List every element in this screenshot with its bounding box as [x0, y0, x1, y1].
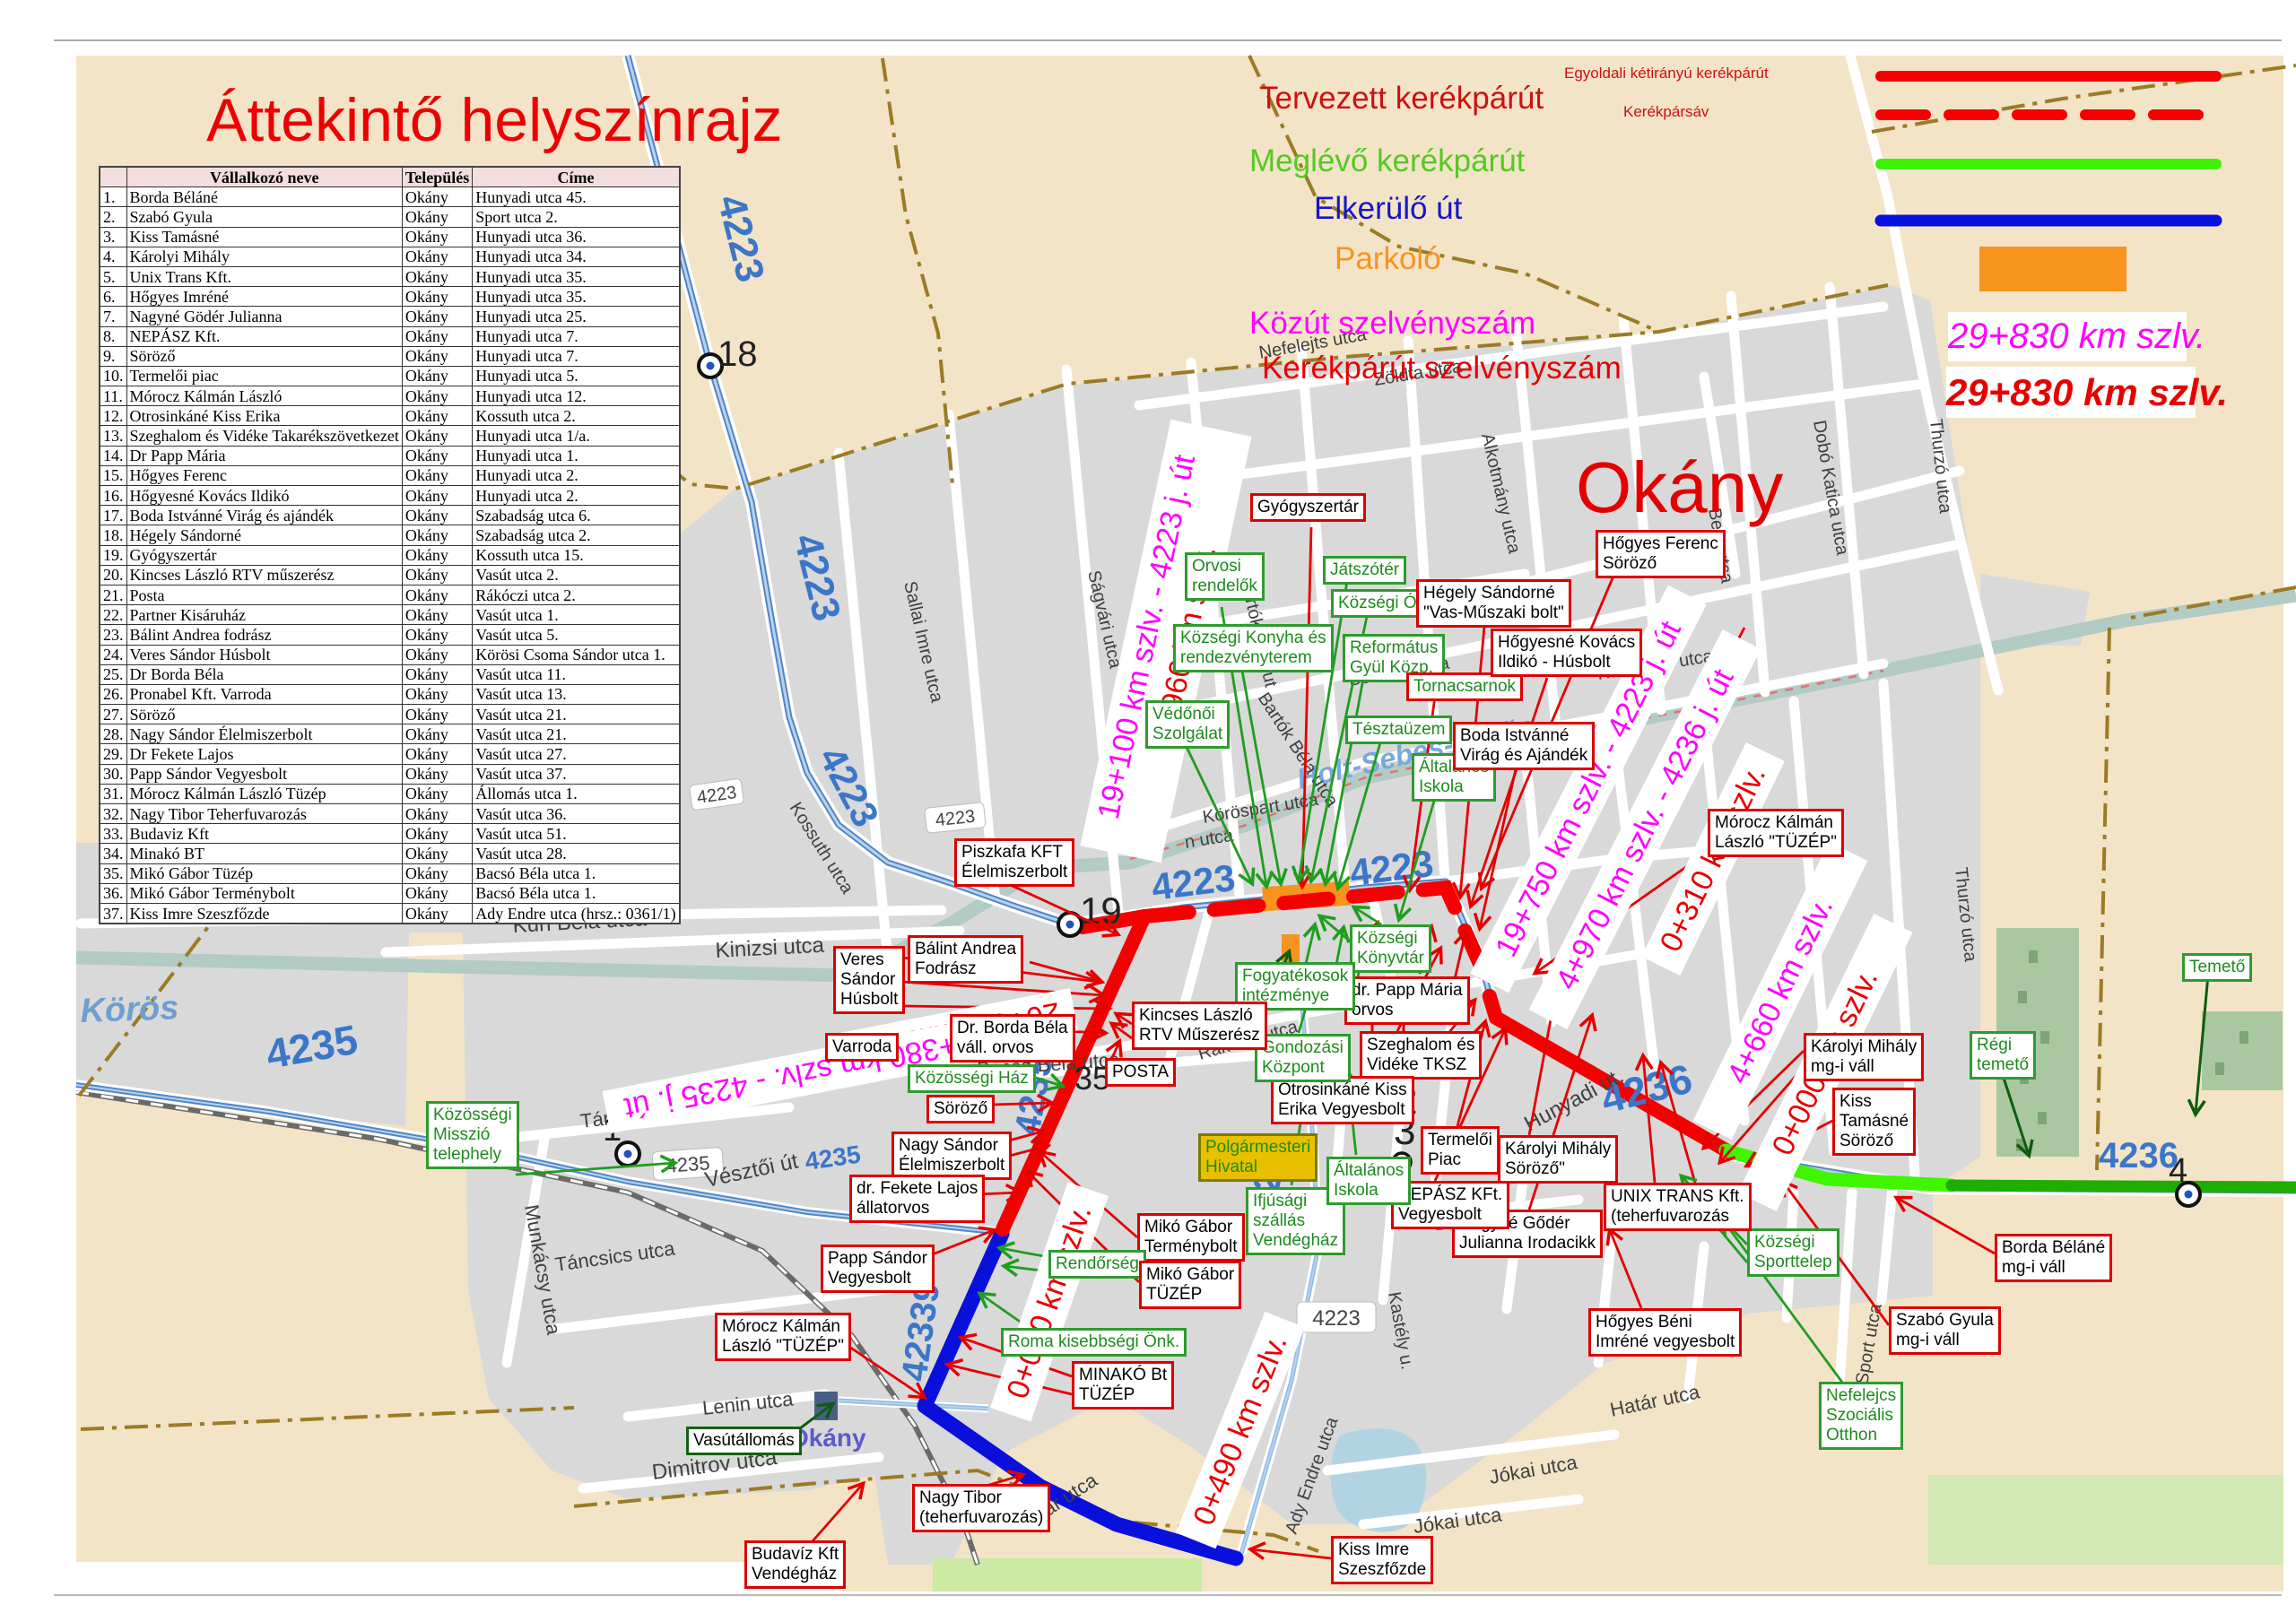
svg-text:Körös: Körös — [80, 989, 179, 1030]
svg-text:18: 18 — [717, 334, 758, 374]
svg-text:4223: 4223 — [1312, 1306, 1360, 1331]
svg-text:4236: 4236 — [2099, 1136, 2179, 1175]
svg-text:4223: 4223 — [935, 807, 977, 831]
svg-text:4: 4 — [2169, 1152, 2187, 1190]
